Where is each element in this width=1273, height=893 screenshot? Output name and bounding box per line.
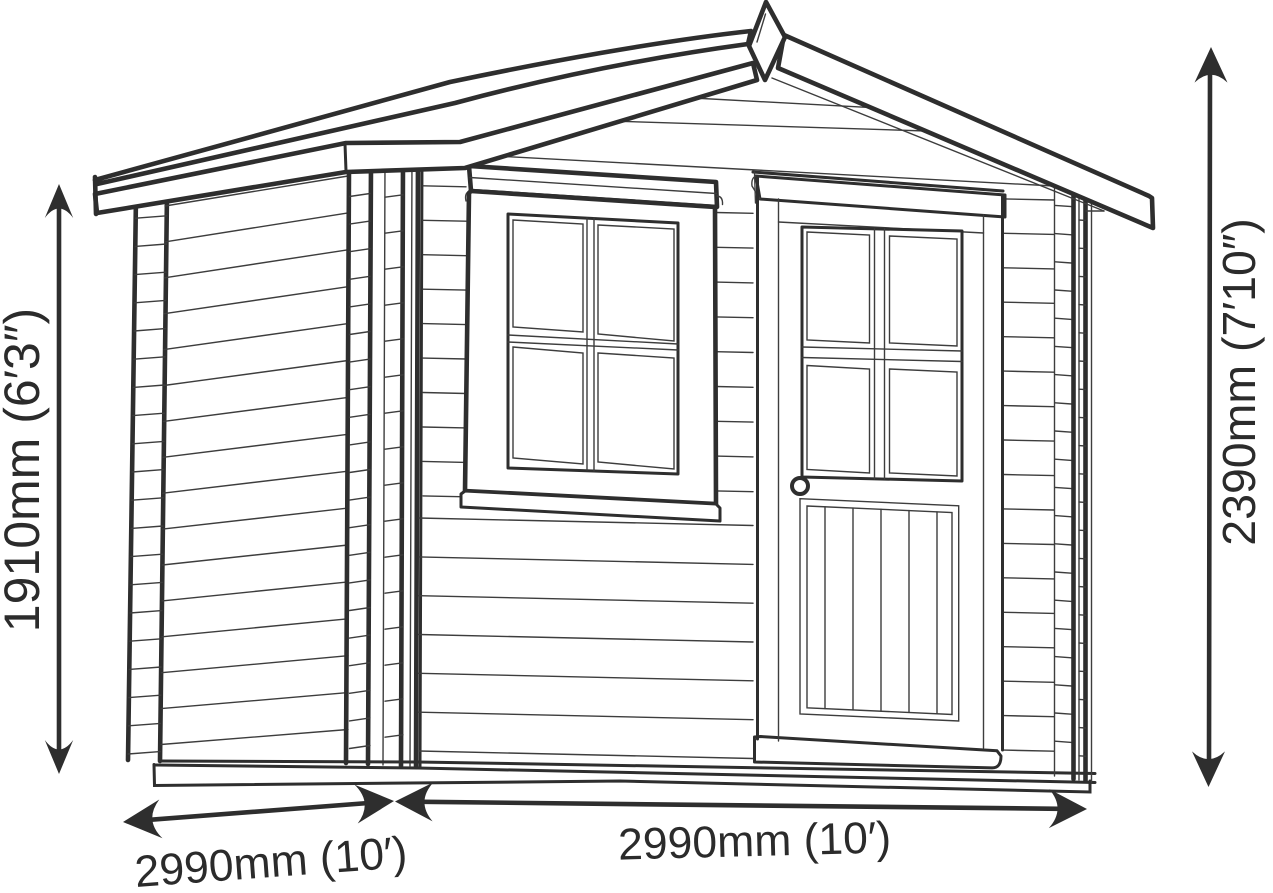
svg-text:2390mm (7′10″): 2390mm (7′10″) [1213, 218, 1265, 546]
svg-text:2990mm (10′): 2990mm (10′) [618, 813, 892, 869]
svg-text:1910mm (6′3″): 1910mm (6′3″) [0, 308, 50, 632]
